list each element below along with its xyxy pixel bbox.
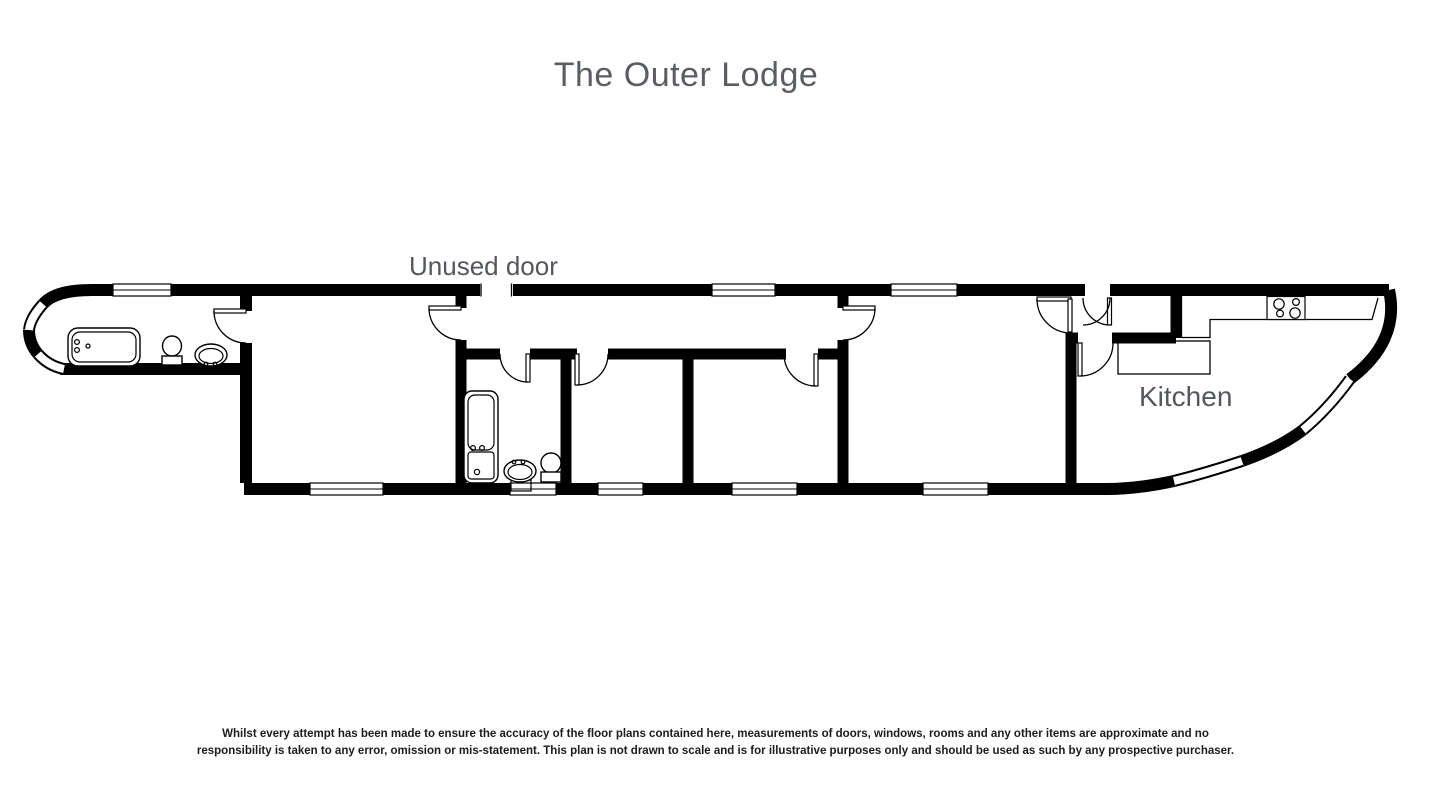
window xyxy=(891,284,957,296)
window xyxy=(310,483,383,495)
disclaimer: Whilst every attempt has been made to en… xyxy=(0,726,1431,760)
door-room-west xyxy=(429,306,461,340)
bathtub-icon xyxy=(464,391,498,483)
door-front-entrance xyxy=(1083,298,1112,325)
window xyxy=(38,354,64,369)
window xyxy=(1303,379,1350,430)
door-left-bathroom xyxy=(214,309,246,343)
door-big-room-east xyxy=(1037,297,1072,333)
window xyxy=(923,483,988,495)
window xyxy=(510,483,556,495)
disclaimer-line-1: Whilst every attempt has been made to en… xyxy=(0,726,1431,743)
window xyxy=(712,284,775,296)
unused-door-opening xyxy=(481,284,512,297)
sink-icon xyxy=(195,344,227,366)
door-big-room-west xyxy=(843,306,875,340)
hob-icon xyxy=(1267,297,1305,320)
unused-door-label: Unused door xyxy=(409,251,558,282)
floor-plan-page: The Outer Lodge xyxy=(0,0,1431,792)
disclaimer-line-2: responsibility is taken to any error, om… xyxy=(0,743,1431,760)
door-lobby-to-kitchen xyxy=(1078,343,1113,376)
door-middle-bathroom xyxy=(500,354,530,382)
door-bedroom-one xyxy=(575,354,608,385)
window xyxy=(113,284,171,296)
toilet-icon xyxy=(541,453,561,482)
bathtub-icon xyxy=(68,328,140,366)
toilet-icon xyxy=(162,336,182,365)
kitchen-label: Kitchen xyxy=(1139,381,1232,413)
interior-walls xyxy=(246,296,1176,483)
window xyxy=(598,483,643,495)
window xyxy=(1174,461,1242,481)
window xyxy=(732,483,797,495)
door-bedroom-two xyxy=(784,354,818,386)
window xyxy=(29,304,43,330)
